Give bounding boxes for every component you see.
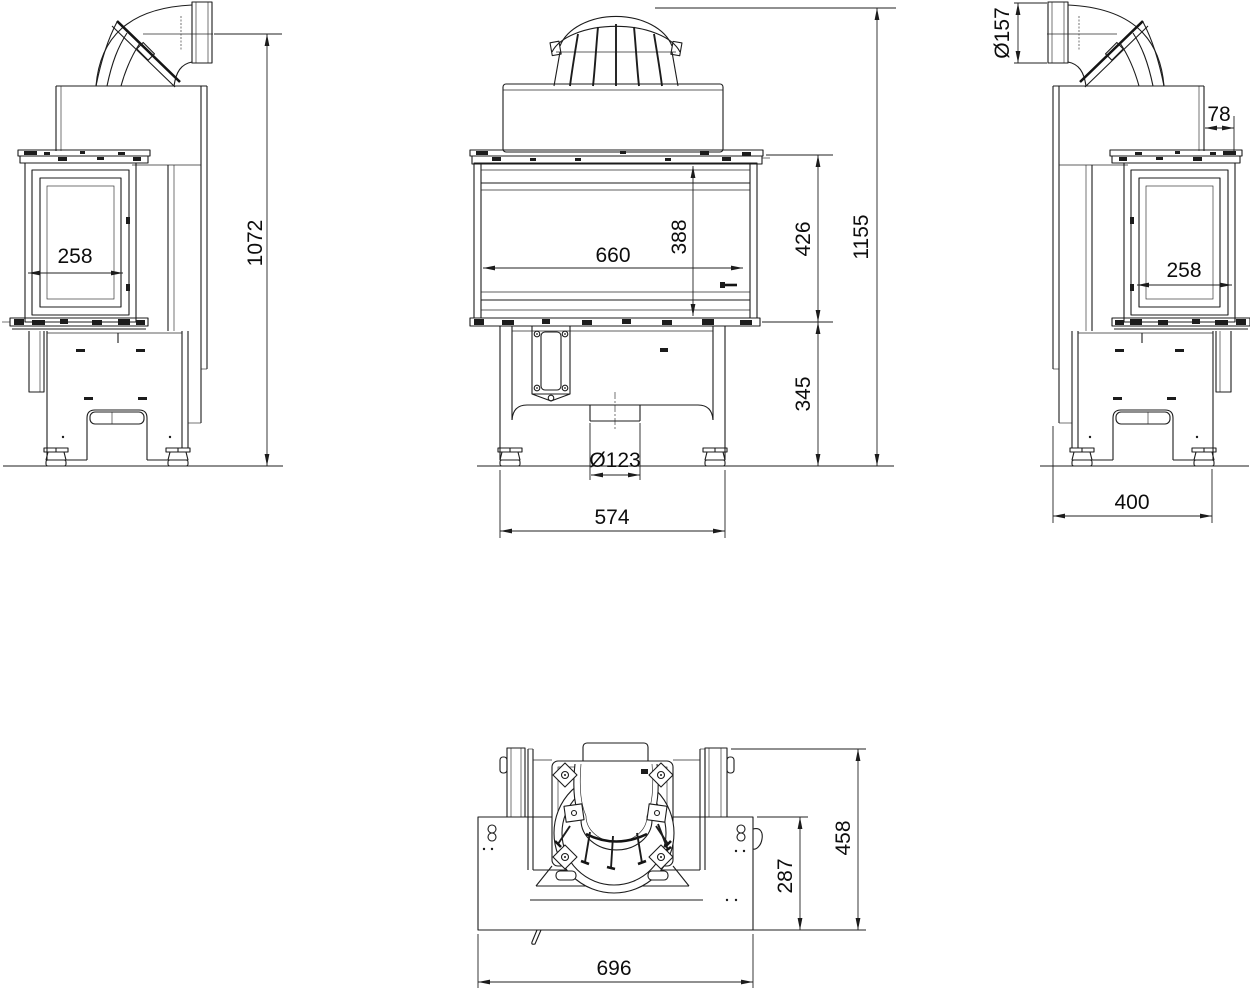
dimension-front-air-inlet: Ø123 (589, 423, 640, 480)
dimension-front-glass-width: 660 (483, 244, 743, 268)
plan-view: 287 458 696 (478, 743, 866, 988)
dim-label-right-flue-diameter: Ø157 (991, 7, 1014, 58)
dimension-front-base-width: 574 (500, 470, 725, 538)
dimension-front-firebox-height: 426 (762, 155, 833, 322)
dimension-right-glass-depth: 258 (1137, 259, 1232, 285)
dim-label-plan-overall-depth: 458 (832, 820, 855, 855)
dimension-left-glass-depth: 258 (28, 245, 123, 273)
side-view-right: Ø157 78 258 400 (991, 2, 1250, 523)
dim-label-right-rear-offset: 78 (1207, 103, 1230, 126)
dimension-right-base-depth: 400 (1053, 426, 1212, 523)
dim-label-front-glass-width: 660 (595, 244, 630, 267)
side-view-right-body (1047, 2, 1250, 466)
technical-drawing-canvas: 258 1072 (0, 0, 1250, 994)
dim-label-front-glass-height: 388 (668, 219, 691, 254)
dimension-front-overall-height: 1155 (655, 8, 896, 466)
dimension-plan-body-width: 696 (478, 934, 753, 988)
dimension-front-glass-height: 388 (668, 166, 693, 316)
dim-label-front-base-width: 574 (594, 506, 629, 529)
door-handle-icon (720, 282, 725, 288)
dim-label-front-overall-height: 1155 (850, 214, 873, 259)
dim-label-left-glass-depth: 258 (57, 245, 92, 268)
side-latch-icon (753, 829, 762, 850)
side-view-left-body (2, 2, 213, 466)
bottom-latch-icon (532, 930, 541, 944)
dimension-left-overall-height: 1072 (214, 34, 282, 466)
dim-label-plan-body-depth: 287 (774, 858, 797, 893)
front-view: 660 388 426 345 1155 Ø123 (470, 8, 896, 538)
side-view-left: 258 1072 (2, 2, 283, 466)
dim-label-front-air-inlet: Ø123 (589, 449, 640, 472)
front-shroud (503, 84, 723, 152)
fireplace-dimension-drawing: 258 1072 (0, 0, 1250, 994)
dimension-right-flue-diameter: Ø157 (991, 3, 1047, 63)
dim-label-plan-body-width: 696 (596, 957, 631, 980)
dim-label-right-base-depth: 400 (1114, 491, 1149, 514)
dim-label-front-firebox-height: 426 (792, 221, 815, 256)
dim-label-front-base-height: 345 (792, 376, 815, 411)
dimension-plan-overall-depth: 458 (731, 749, 866, 930)
dimension-right-rear-offset: 78 (1205, 103, 1234, 152)
dim-label-left-overall-height: 1072 (244, 220, 267, 267)
front-flue-dome (550, 16, 682, 86)
front-base (498, 326, 727, 466)
dim-label-right-glass-depth: 258 (1166, 259, 1201, 282)
dimension-front-base-height: 345 (792, 322, 818, 466)
plan-flue-collar (552, 743, 674, 893)
